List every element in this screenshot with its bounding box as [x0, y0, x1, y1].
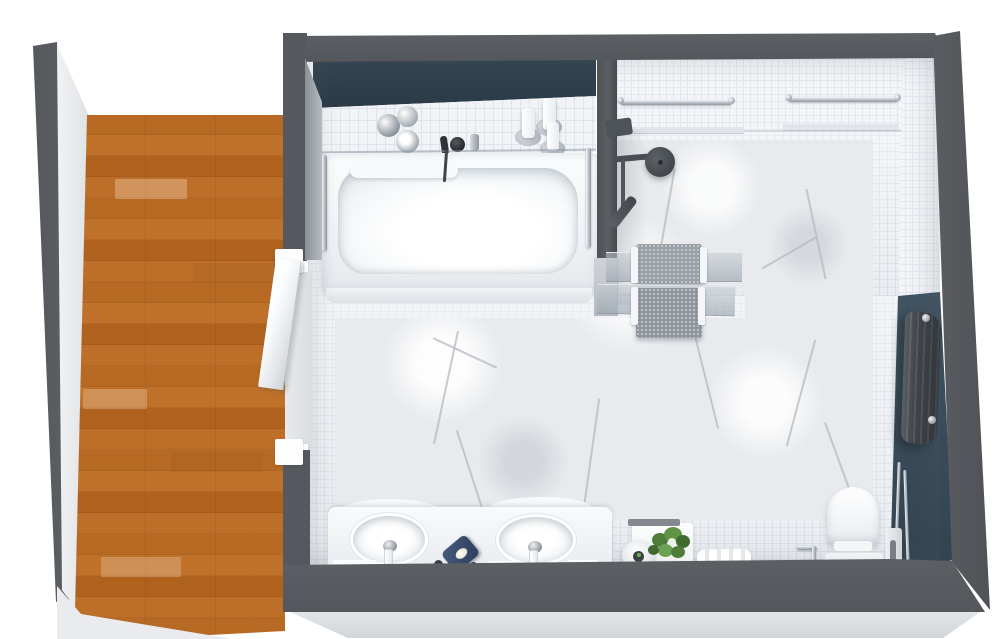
grab-bar-end [728, 97, 735, 104]
bathtub-basin [338, 168, 578, 274]
grab-bar [620, 100, 732, 105]
grab-bar [586, 148, 591, 248]
top-wall [283, 33, 945, 62]
floorplan-render [0, 0, 1000, 639]
hallway-wood-floor [75, 115, 285, 639]
towel-bar-bracket [631, 287, 638, 325]
radiator[interactable] [901, 310, 941, 446]
bathtub-apron [326, 288, 592, 303]
towel-bar-bracket [631, 247, 638, 283]
grab-bar-end [785, 94, 792, 101]
wood-plank [83, 389, 147, 409]
plant-foliage [648, 545, 659, 555]
toiletry-canister[interactable] [397, 106, 418, 127]
toilet[interactable] [827, 487, 879, 545]
shower-head-nozzle [658, 160, 663, 165]
shower-back-wall [617, 58, 905, 132]
wood-plank [171, 452, 263, 472]
door-frame [275, 439, 303, 465]
left-wall-upper [283, 33, 307, 261]
towel-bar-bracket [698, 287, 705, 325]
wood-plank [101, 557, 181, 577]
wood-plank [193, 263, 277, 283]
plant-foliage [671, 546, 685, 558]
plant-flower [668, 538, 676, 546]
toilet-seat-hinge [833, 540, 873, 552]
bottom-wall-outer-face [288, 612, 980, 639]
grab-bar [322, 155, 327, 251]
small-bottle [470, 134, 479, 151]
candle[interactable] [522, 108, 535, 138]
grab-bar-end [894, 94, 901, 101]
glass-shelf [783, 124, 899, 131]
decor-bowl-sprout [637, 553, 641, 557]
cabinet-top-rail [628, 519, 680, 526]
grab-bar-end [617, 97, 624, 104]
grab-bar [788, 97, 898, 102]
candle[interactable] [547, 122, 559, 151]
right-wall-tile-face [898, 38, 940, 300]
left-wall-lower [283, 450, 310, 572]
bathtub-armrest [350, 163, 458, 178]
radiator-mount [922, 314, 930, 322]
radiator-mount [928, 416, 936, 424]
towel[interactable] [636, 244, 702, 284]
towel[interactable] [636, 288, 702, 338]
wood-plank [115, 179, 187, 199]
towel-bar-bracket [700, 247, 707, 283]
shower-soap-shelf [605, 117, 633, 137]
